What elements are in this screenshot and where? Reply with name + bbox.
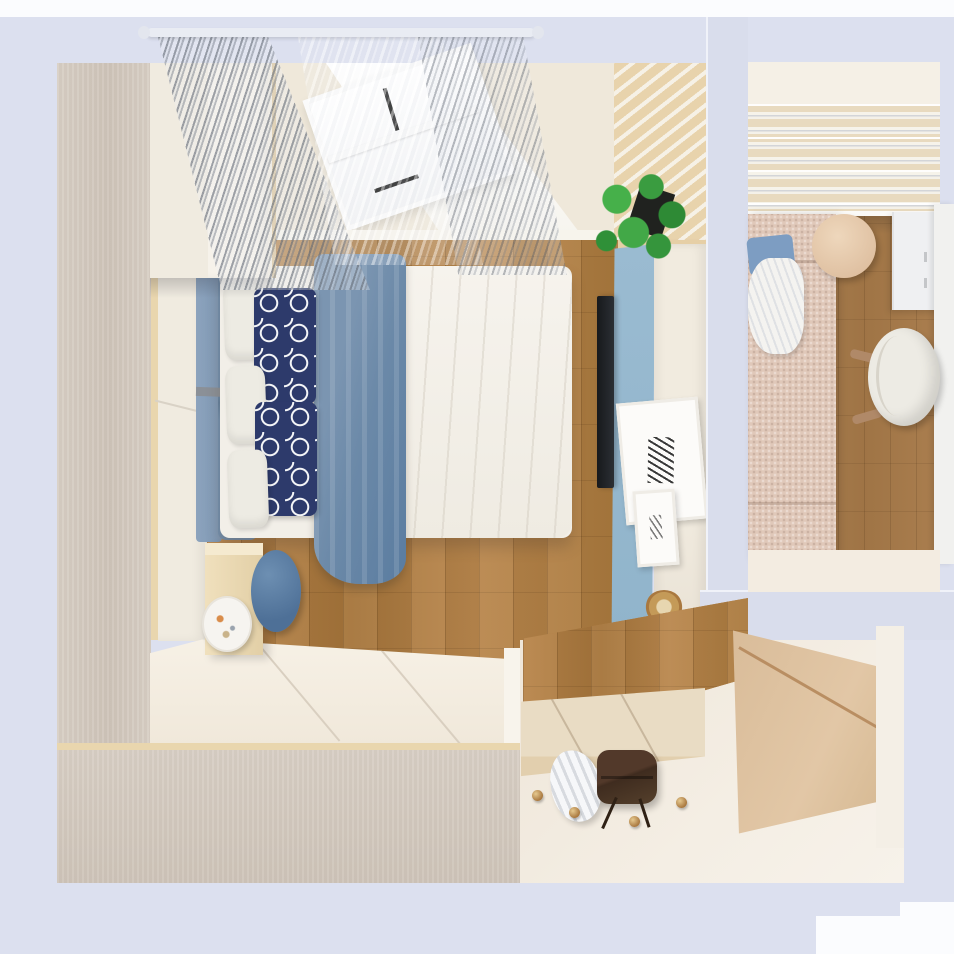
hallway-wall [876,626,904,848]
partition-wall-vertical [706,17,748,642]
pouf [251,550,301,632]
brass-knob [569,807,580,818]
adjacent-blinds [748,104,940,214]
brass-knob [629,816,640,827]
curtain-rod [147,28,535,37]
brass-knob [532,790,543,801]
platform-seam [262,648,341,741]
duvet [404,266,572,538]
desk-chair [868,328,940,426]
brass-knob [676,797,687,808]
adjacent-floor-band [748,550,940,592]
wardrobe-bottom-top [57,750,520,883]
cabinet-wood-edge [57,743,520,750]
throw-blanket [314,254,406,584]
leather-bag [597,750,657,804]
adjacent-ceiling-band [748,62,940,104]
bed [196,256,572,548]
platform-seam [376,644,462,746]
decor-plate [202,596,252,652]
round-side-table [812,214,876,278]
outer-wall-notch [816,916,954,954]
frame-art [649,515,663,540]
picture-frame-small [632,489,679,568]
floorplan-render [0,0,954,954]
daybed-bedding [748,258,804,354]
outer-wall-top [0,0,954,17]
tv [597,296,614,488]
potted-plant [594,168,698,272]
white-pillow [227,449,270,528]
frame-art [648,437,675,483]
